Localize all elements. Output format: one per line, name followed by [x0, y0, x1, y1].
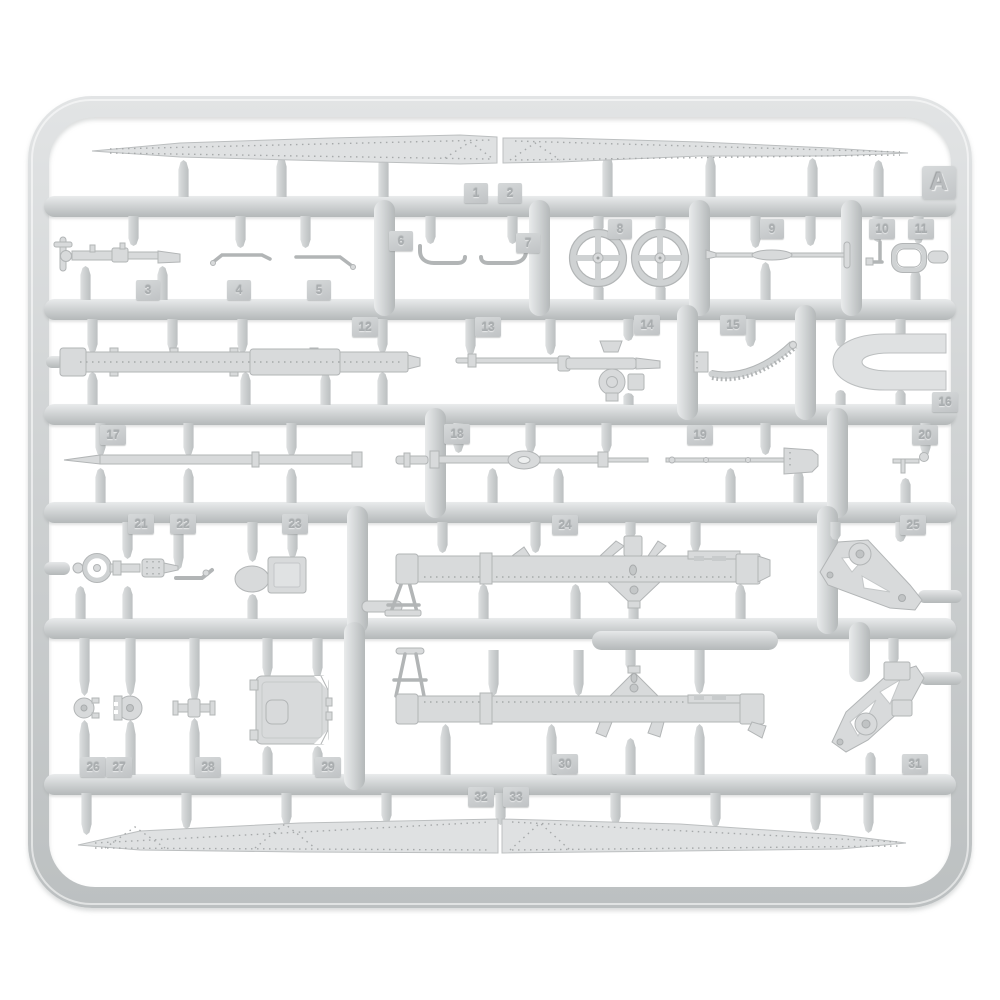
part-tag-4: 4 [227, 280, 251, 300]
part-5-bent-rod [296, 257, 356, 270]
part-tag-10: 10 [869, 219, 895, 239]
part-12-carriage-beam [60, 348, 420, 376]
part-1-trail-side-plate [92, 135, 497, 164]
part-20-small-lever [893, 453, 929, 474]
part-tag-1: 1 [464, 183, 488, 203]
part-3-sight-assembly [54, 237, 180, 271]
part-tag-17: 17 [100, 425, 126, 445]
part-tag-3: 3 [136, 280, 160, 300]
part-tag-27: 27 [106, 757, 132, 777]
part-28-cross-bar [173, 699, 215, 717]
sprue-letter-tab: A [922, 166, 956, 199]
part-25-carriage-bracket [820, 540, 922, 610]
part-tag-21: 21 [128, 514, 154, 534]
part-tag-12: 12 [352, 317, 378, 337]
part-tag-25: 25 [900, 515, 926, 535]
part-6-hook-handle [420, 246, 465, 263]
part-tag-23: 23 [282, 514, 308, 534]
part-14-elevation-gear [558, 341, 660, 401]
part-19-spade-rod [666, 448, 818, 474]
part-tag-32: 32 [468, 787, 494, 807]
part-27-hub-disc [114, 696, 142, 720]
part-tag-24: 24 [552, 515, 578, 535]
part-26-hub-disc [74, 698, 99, 718]
part-tag-14: 14 [634, 315, 660, 335]
part-tag-9: 9 [760, 219, 784, 239]
part-4-bent-rod [211, 255, 271, 266]
part-32-trail-side-plate [78, 819, 498, 853]
part-13-rod [456, 354, 570, 368]
part-tag-13: 13 [475, 317, 501, 337]
part-tag-7: 7 [516, 233, 540, 253]
part-tag-30: 30 [552, 754, 578, 774]
part-33-trail-side-plate [502, 819, 906, 853]
part-tag-18: 18 [444, 424, 470, 444]
part-tag-20: 20 [912, 425, 938, 445]
part-tag-11: 11 [908, 219, 934, 239]
part-tag-15: 15 [720, 315, 746, 335]
part-15-toothed-arc [694, 342, 797, 380]
part-tag-16: 16 [932, 392, 958, 412]
part-22-crank-lever [176, 570, 212, 578]
part-2-trail-side-plate [503, 138, 908, 163]
part-tag-22: 22 [170, 514, 196, 534]
part-tag-28: 28 [195, 757, 221, 777]
part-tag-33: 33 [503, 787, 529, 807]
part-31-carriage-bracket [832, 662, 924, 752]
part-16-u-guard [833, 334, 946, 390]
part-tag-6: 6 [389, 231, 413, 251]
part-tag-5: 5 [307, 280, 331, 300]
part-21-handwheel-assembly [73, 554, 178, 583]
part-tag-8: 8 [608, 219, 632, 239]
part-18-linked-rod [430, 451, 648, 469]
part-23-breech-block [235, 557, 306, 593]
part-9-ramrod [706, 242, 850, 268]
part-tag-2: 2 [498, 183, 522, 203]
part-29-shield-panel [250, 676, 332, 744]
parts-layer [0, 0, 1000, 1000]
model-kit-sprue-photo: 1 2 3 4 5 6 7 8 9 10 11 12 13 14 15 16 1… [0, 0, 1000, 1000]
part-tag-29: 29 [315, 757, 341, 777]
part-30-trail-leg [394, 648, 766, 738]
part-10-l-bracket [866, 242, 882, 265]
part-tag-19: 19 [687, 425, 713, 445]
part-tag-26: 26 [80, 757, 106, 777]
part-24-trail-leg [362, 536, 770, 616]
part-11-ring-and-pin [892, 244, 949, 273]
part-tag-31: 31 [902, 754, 928, 774]
part-17-aiming-stake [64, 452, 428, 467]
